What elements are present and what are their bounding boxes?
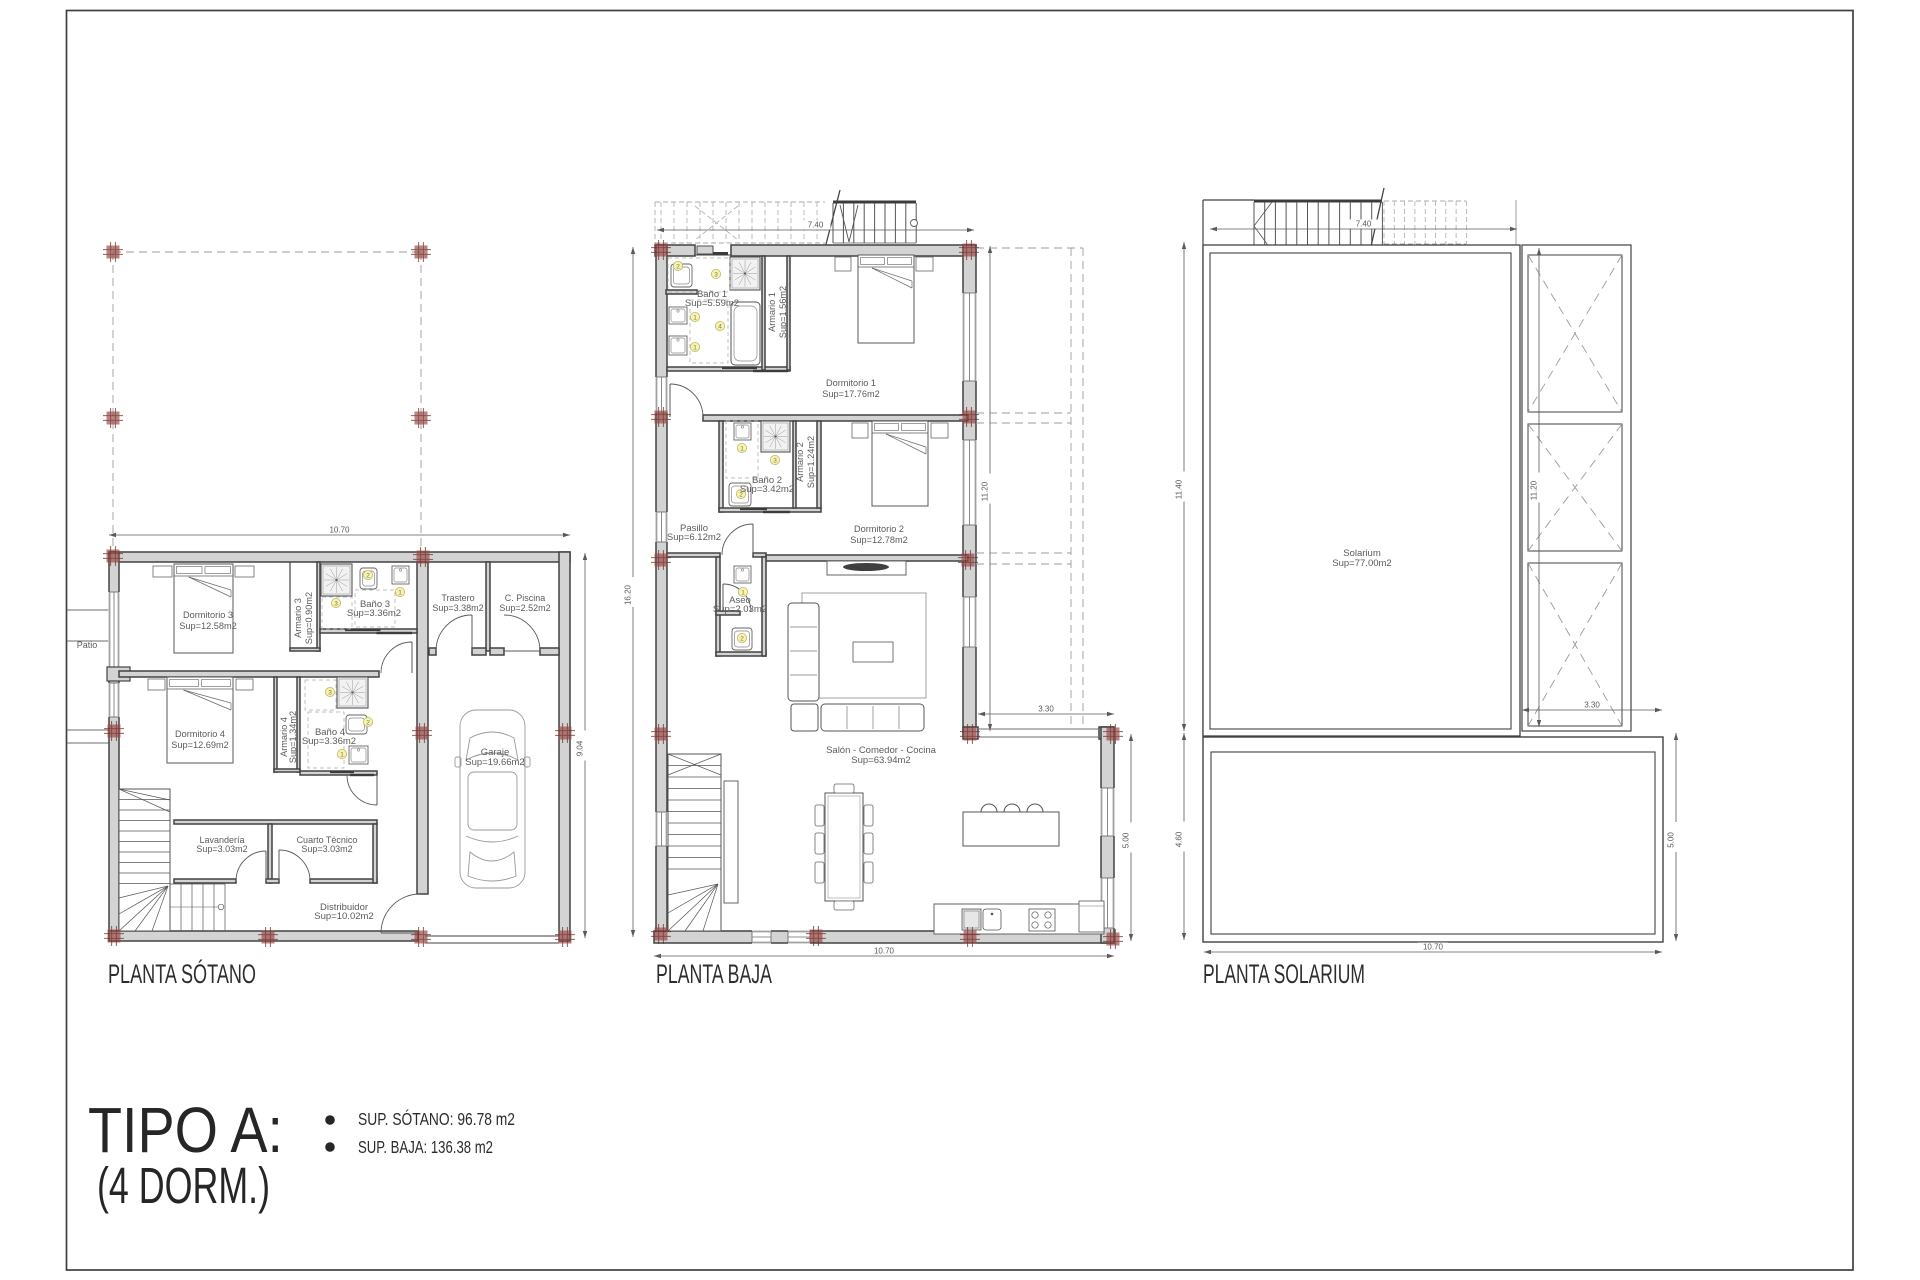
svg-text:Sup=12.78m2: Sup=12.78m2 xyxy=(850,535,907,545)
svg-text:Sup=1.24m2: Sup=1.24m2 xyxy=(806,436,816,488)
svg-text:Armario 2: Armario 2 xyxy=(795,442,805,482)
svg-text:11.20: 11.20 xyxy=(981,481,990,501)
svg-text:3.30: 3.30 xyxy=(1038,705,1054,714)
svg-text:1: 1 xyxy=(340,751,344,758)
svg-text:Sup=2.52m2: Sup=2.52m2 xyxy=(499,603,550,613)
svg-text:Sup=3.36m2: Sup=3.36m2 xyxy=(302,736,356,747)
svg-text:Sup=5.59m2: Sup=5.59m2 xyxy=(685,298,739,309)
svg-text:7.40: 7.40 xyxy=(808,221,824,230)
svg-text:10.70: 10.70 xyxy=(329,526,350,535)
svg-text:Sup=2.03m2: Sup=2.03m2 xyxy=(713,604,767,615)
svg-text:Sup=3.42m2: Sup=3.42m2 xyxy=(740,484,794,495)
svg-text:2: 2 xyxy=(366,719,370,726)
svg-text:3: 3 xyxy=(334,600,338,607)
svg-text:3: 3 xyxy=(714,271,718,278)
svg-text:Sup=3.38m2: Sup=3.38m2 xyxy=(432,603,483,613)
svg-text:Dormitorio 2: Dormitorio 2 xyxy=(854,524,904,534)
svg-text:SUP. SÓTANO: 96.78 m2: SUP. SÓTANO: 96.78 m2 xyxy=(358,1108,515,1129)
svg-text:SUP. BAJA: 136.38 m2: SUP. BAJA: 136.38 m2 xyxy=(358,1137,493,1157)
svg-text:Sup=3.03m2: Sup=3.03m2 xyxy=(301,844,352,854)
svg-text:C. Piscina: C. Piscina xyxy=(505,593,546,603)
svg-text:2: 2 xyxy=(366,572,370,579)
svg-text:16.20: 16.20 xyxy=(624,584,633,605)
svg-text:1: 1 xyxy=(693,344,697,351)
svg-text:3.30: 3.30 xyxy=(1584,701,1600,710)
svg-text:11.40: 11.40 xyxy=(1175,479,1184,499)
svg-text:TIPO A:: TIPO A: xyxy=(88,1094,283,1166)
svg-text:Trastero: Trastero xyxy=(441,593,474,603)
svg-text:4.60: 4.60 xyxy=(1175,831,1184,847)
svg-text:PLANTA BAJA: PLANTA BAJA xyxy=(656,959,772,989)
svg-text:Sup=1.34m2: Sup=1.34m2 xyxy=(288,711,298,763)
svg-text:9.04: 9.04 xyxy=(576,740,585,756)
svg-text:3: 3 xyxy=(328,689,332,696)
svg-text:Patio: Patio xyxy=(77,640,98,650)
svg-text:PLANTA SOLARIUM: PLANTA SOLARIUM xyxy=(1203,959,1365,989)
svg-text:2: 2 xyxy=(740,635,744,642)
svg-text:Dormitorio 1: Dormitorio 1 xyxy=(826,378,876,388)
svg-text:2: 2 xyxy=(676,263,680,270)
svg-text:Armario 3: Armario 3 xyxy=(293,598,303,638)
svg-text:Sup=10.02m2: Sup=10.02m2 xyxy=(314,911,373,922)
svg-text:Dormitorio 3: Dormitorio 3 xyxy=(183,610,233,620)
svg-text:10.70: 10.70 xyxy=(874,947,895,956)
svg-text:1: 1 xyxy=(693,314,697,321)
svg-text:Armario 1: Armario 1 xyxy=(767,292,777,332)
svg-text:3: 3 xyxy=(773,457,777,464)
svg-text:Sup=12.58m2: Sup=12.58m2 xyxy=(179,621,236,631)
svg-text:Sup=3.36m2: Sup=3.36m2 xyxy=(347,608,401,619)
svg-text:Sup=0.90m2: Sup=0.90m2 xyxy=(304,592,314,644)
svg-text:7.40: 7.40 xyxy=(1356,220,1372,229)
svg-text:(4 DORM.): (4 DORM.) xyxy=(97,1157,270,1214)
svg-text:5.00: 5.00 xyxy=(1667,832,1676,848)
svg-text:Dormitorio 4: Dormitorio 4 xyxy=(175,729,225,739)
svg-text:Sup=6.12m2: Sup=6.12m2 xyxy=(667,532,721,543)
svg-text:Sup=1.56m2: Sup=1.56m2 xyxy=(778,286,788,338)
svg-text:4: 4 xyxy=(718,323,722,330)
svg-text:Sup=12.69m2: Sup=12.69m2 xyxy=(171,740,228,750)
svg-text:PLANTA SÓTANO: PLANTA SÓTANO xyxy=(108,958,256,989)
svg-text:Sup=3.03m2: Sup=3.03m2 xyxy=(196,844,247,854)
svg-text:Sup=17.76m2: Sup=17.76m2 xyxy=(822,389,879,399)
svg-text:Sup=19.66m2: Sup=19.66m2 xyxy=(465,757,524,768)
svg-text:1: 1 xyxy=(398,589,402,596)
svg-text:5.00: 5.00 xyxy=(1122,832,1131,848)
svg-text:10.70: 10.70 xyxy=(1423,943,1444,952)
svg-text:Sup=77.00m2: Sup=77.00m2 xyxy=(1332,558,1391,569)
svg-text:11.20: 11.20 xyxy=(1530,480,1539,500)
svg-text:Sup=63.94m2: Sup=63.94m2 xyxy=(851,755,910,766)
svg-text:1: 1 xyxy=(740,445,744,452)
